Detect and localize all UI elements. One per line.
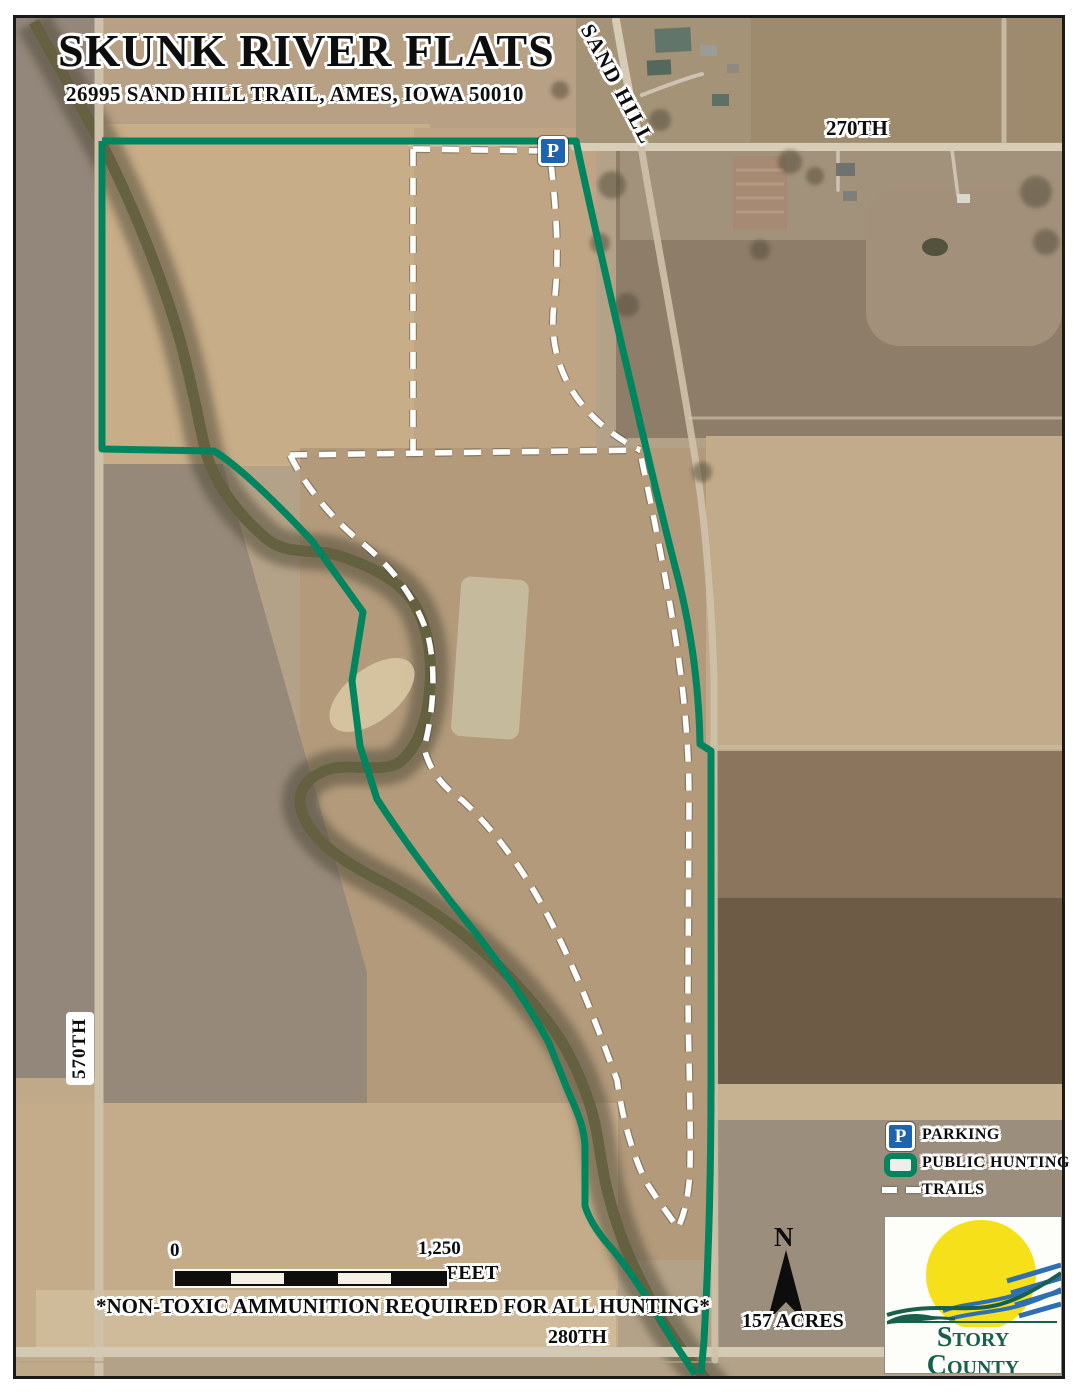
logo-artwork (885, 1217, 1061, 1327)
scale-segment (338, 1273, 392, 1284)
map-subtitle: 26995 SAND HILL TRAIL, AMES, IOWA 50010 (66, 82, 524, 107)
scale-segment (177, 1273, 231, 1284)
legend-trails-swatch (882, 1187, 921, 1193)
road-label-280th: 280TH (548, 1326, 607, 1349)
legend-parking-icon: P (886, 1122, 915, 1151)
scale-segment (391, 1273, 445, 1284)
trail-dash (906, 1187, 921, 1193)
map-sheet: SKUNK RIVER FLATS 26995 SAND HILL TRAIL,… (0, 0, 1080, 1398)
scale-bar (175, 1271, 447, 1286)
north-label: N (774, 1222, 794, 1253)
logo-text: Story County Conservation (889, 1321, 1057, 1374)
legend-parking-label: PARKING (922, 1126, 1000, 1144)
legend-trails-label: TRAILS (922, 1181, 985, 1199)
parking-sign-icon: P (538, 136, 568, 166)
scale-segment (231, 1273, 285, 1284)
legend-public-hunting-swatch (884, 1153, 917, 1177)
buildings (647, 27, 970, 256)
scale-segment (284, 1273, 338, 1284)
trail-dash (882, 1187, 897, 1193)
mowed-strip (451, 576, 530, 740)
road-label-570th: 570TH (66, 1012, 94, 1085)
story-county-conservation-logo: Story County Conservation (884, 1216, 1062, 1374)
road-label-270th: 270TH (826, 116, 888, 141)
acreage-label: 157 ACRES (742, 1310, 844, 1333)
legend-public-hunting-label: PUBLIC HUNTING (922, 1154, 1070, 1172)
scale-end-label: 1,250 (418, 1238, 461, 1260)
scale-unit-label: FEET (446, 1262, 498, 1285)
tree-clusters (551, 81, 1059, 482)
hunting-note: *NON-TOXIC AMMUNITION REQUIRED FOR ALL H… (96, 1294, 656, 1319)
logo-org-line1: Story County (889, 1324, 1057, 1374)
scale-start-label: 0 (170, 1240, 180, 1262)
map-title: SKUNK RIVER FLATS (58, 24, 555, 77)
